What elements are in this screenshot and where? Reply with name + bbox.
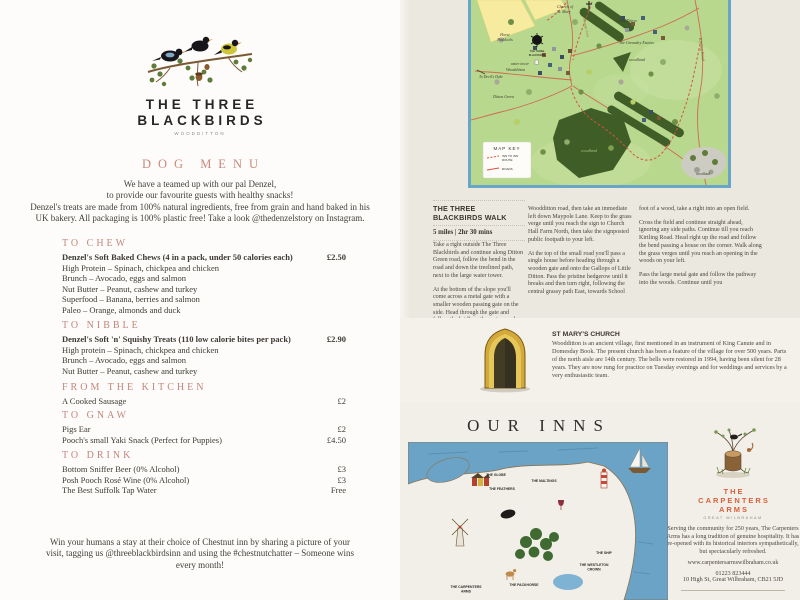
item-variant: Superfood – Banana, berries and salmon — [62, 294, 346, 305]
pub-building-icon — [677, 594, 789, 600]
carpenters-description: Serving the community for 250 years, The… — [666, 526, 800, 556]
carpenters-address: 10 High St, Great Wilbraham, CB21 5JD — [666, 577, 800, 583]
menu-item-row: Bottom Sniffer Beer (0% Alcohol) £3 — [62, 464, 346, 475]
walk-paragraph: Take a right outside The Three Blackbird… — [433, 242, 525, 281]
intro-line: Denzel's treats are made from 100% natur… — [0, 202, 400, 213]
menu-item-row: A Cooked Sausage £2 — [62, 396, 346, 407]
brand-line1: THE THREE — [4, 97, 400, 113]
item-name: Pigs Ear — [62, 424, 91, 435]
item-name: Bottom Sniffer Beer (0% Alcohol) — [62, 464, 179, 475]
menu-item-row: Posh Pooch Rosé Wine (0% Alcohol) £3 — [62, 475, 346, 486]
item-price: £2.90 — [327, 334, 346, 345]
item-price: £2 — [338, 424, 347, 435]
svg-text:St. Mary: St. Mary — [557, 9, 571, 14]
carpenters-name-line: THE — [668, 487, 800, 496]
item-variant: Brunch – Avocado, eggs and salmon — [62, 355, 346, 366]
item-name: Pooch's small Yaki Snack (Perfect for Pu… — [62, 435, 222, 446]
village-map-illustration: Church of St. Mary Little Ditton The Gre… — [471, 0, 728, 185]
svg-text:THE PACKHORSE: THE PACKHORSE — [509, 583, 539, 587]
menu-item-row: Pigs Ear £2 — [62, 424, 346, 435]
item-price: £3 — [338, 475, 347, 486]
svg-text:THE GLOBE: THE GLOBE — [486, 473, 507, 477]
church-section: ST MARY'S CHURCH Woodditton is an ancien… — [400, 318, 800, 402]
carpenters-arms-panel: THE CARPENTERS ARMS GREAT WILBRAHAM Serv… — [666, 424, 800, 600]
svg-text:Ditton Green: Ditton Green — [492, 94, 514, 99]
svg-text:THE WESTLETON: THE WESTLETON — [580, 563, 609, 567]
church-body: Woodditton is an ancient village, first … — [552, 340, 790, 380]
deer-icon — [506, 569, 517, 580]
item-price: £2 — [338, 396, 347, 407]
village-walk-map: Church of St. Mary Little Ditton The Gre… — [468, 0, 731, 188]
section-to-gnaw: TO GNAW Pigs Ear £2 Pooch's small Yaki S… — [62, 410, 346, 445]
walk-description: THE THREE BLACKBIRDS WALK 5 miles | 2hr … — [400, 196, 800, 318]
item-price: Free — [331, 485, 346, 496]
section-heading: TO CHEW — [62, 238, 346, 249]
tree-stump-icon — [701, 424, 765, 482]
three-blackbirds-logo-icon — [140, 28, 260, 94]
svg-text:THE CARPENTERS: THE CARPENTERS — [450, 585, 482, 589]
section-to-drink: TO DRINK Bottom Sniffer Beer (0% Alcohol… — [62, 450, 346, 496]
church-arch-icon — [478, 325, 532, 395]
church-title: ST MARY'S CHURCH — [552, 331, 790, 338]
svg-text:woodland: woodland — [629, 57, 646, 62]
inns-region-map-illustration: THE GLOBE THE FEATHERS THE MALTINGS THE … — [408, 442, 668, 600]
intro-line: to provide our favourite guests with hea… — [0, 190, 400, 201]
item-variant: High protein – Spinach, chickpea and chi… — [62, 345, 346, 356]
walk-title: THE THREE BLACKBIRDS WALK — [433, 200, 525, 226]
wine-glass-icon — [558, 500, 564, 510]
walk-header: THE THREE BLACKBIRDS WALK 5 miles | 2hr … — [433, 200, 525, 241]
section-to-nibble: TO NIBBLE Denzel's Soft 'n' Squishy Trea… — [62, 320, 346, 376]
menu-item-row: The Best Suffolk Tap Water Free — [62, 485, 346, 496]
carpenters-subtitle: GREAT WILBRAHAM — [666, 516, 800, 520]
walk-paragraph: At the top of the small road you'll pass… — [528, 251, 634, 297]
brand-wordmark: THE THREE BLACKBIRDS — [0, 97, 400, 129]
walk-paragraph: foot of a wood, take a right into an ope… — [639, 206, 764, 214]
menu-item-row: Denzel's Soft Baked Chews (4 in a pack, … — [62, 252, 346, 263]
section-heading: TO GNAW — [62, 410, 346, 421]
walk-paragraph: Pass the large metal gate and follow the… — [639, 272, 764, 287]
carpenters-name-line: ARMS — [668, 505, 800, 514]
svg-text:ROADS: ROADS — [502, 167, 513, 171]
svg-text:Little Ditton: Little Ditton — [616, 18, 637, 23]
intro-line: UK bakery. All packaging is 100% plastic… — [0, 213, 400, 224]
item-price: £4.50 — [327, 435, 346, 446]
mole-icon — [500, 508, 517, 520]
blackbird-right-icon — [214, 40, 242, 55]
blackbird-middle-icon — [184, 37, 213, 52]
menu-item-row: Pooch's small Yaki Snack (Perfect for Pu… — [62, 435, 346, 446]
section-heading: FROM THE KITCHEN — [62, 382, 346, 393]
svg-text:BLACKBIRDS: BLACKBIRDS — [529, 53, 546, 57]
item-price: £2.50 — [327, 252, 346, 263]
svg-text:ARMS: ARMS — [461, 590, 472, 594]
footer-line: visit, tagging us @threeblackbirdsinn an… — [0, 548, 400, 559]
church-text: ST MARY'S CHURCH Woodditton is an ancien… — [552, 331, 790, 380]
our-inns-title: OUR INNS — [400, 416, 670, 436]
windmill-icon — [452, 519, 468, 546]
svg-text:CROWN: CROWN — [587, 568, 601, 572]
item-variant: High Protein – Spinach, chickpea and chi… — [62, 263, 346, 274]
menu-item-row: Denzel's Soft 'n' Squishy Treats (110 lo… — [62, 334, 346, 345]
item-variant: Nut Butter – Peanut, cashew and turkey — [62, 366, 346, 377]
brand-subtitle: WOODDITTON — [0, 131, 400, 136]
svg-text:water tower: water tower — [511, 62, 530, 66]
svg-text:ROUTE: ROUTE — [502, 158, 513, 162]
svg-text:To Devil's Dyke: To Devil's Dyke — [479, 75, 503, 79]
svg-text:woodland: woodland — [581, 148, 598, 153]
map-key: MAP KEY INN TO INN ROUTE ROADS — [483, 142, 531, 178]
water-tower-icon — [535, 60, 538, 64]
footer-line: every month! — [0, 560, 400, 571]
competition-footer: Win your humans a stay at their choice o… — [0, 537, 400, 571]
walk-paragraph: Cross the field and continue straight ah… — [639, 220, 764, 266]
section-heading: TO DRINK — [62, 450, 346, 461]
item-variant: Paleo – Orange, almonds and duck — [62, 305, 346, 316]
svg-text:THE SHIP: THE SHIP — [596, 551, 612, 555]
section-heading: TO NIBBLE — [62, 320, 346, 331]
footer-line: Win your humans a stay at their choice o… — [0, 537, 400, 548]
forest-cluster — [515, 528, 559, 561]
item-price: £3 — [338, 464, 347, 475]
item-variant: Nut Butter – Peanut, cashew and turkey — [62, 284, 346, 295]
intro-line: We have a teamed up with our pal Denzel, — [0, 179, 400, 190]
menu-title: DOG MENU — [0, 157, 400, 172]
our-inns-section: OUR INNS — [400, 402, 800, 600]
item-name: Denzel's Soft 'n' Squishy Treats (110 lo… — [62, 334, 291, 345]
brand-line2: BLACKBIRDS — [4, 113, 400, 129]
brochure-spread: THE THREE BLACKBIRDS WOODDITTON DOG MENU… — [0, 0, 800, 600]
dog-menu-page: THE THREE BLACKBIRDS WOODDITTON DOG MENU… — [0, 0, 400, 600]
item-name: A Cooked Sausage — [62, 396, 126, 407]
walk-distance-duration: 5 miles | 2hr 30 mins — [433, 226, 525, 241]
svg-text:Paddocks: Paddocks — [496, 37, 513, 42]
item-name: Denzel's Soft Baked Chews (4 in a pack, … — [62, 252, 293, 263]
svg-text:THE FEATHERS: THE FEATHERS — [489, 487, 515, 491]
svg-text:THE THREE: THE THREE — [530, 49, 545, 53]
carpenters-website: www.carpentersarmswilbraham.co.uk — [666, 560, 800, 566]
carpenters-name-line: CARPENTERS — [668, 496, 800, 505]
item-variant: Brunch – Avocado, eggs and salmon — [62, 273, 346, 284]
estuary-blob — [553, 574, 583, 590]
walk-column-3: foot of a wood, take a right into an ope… — [639, 206, 764, 293]
divider — [681, 590, 785, 591]
walk-paragraph: Woodditton road, then take an immediate … — [528, 206, 634, 245]
menu-intro: We have a teamed up with our pal Denzel,… — [0, 179, 400, 225]
lighthouse-icon — [601, 469, 607, 489]
svg-text:THE MALTINGS: THE MALTINGS — [531, 479, 557, 483]
item-name: Posh Pooch Rosé Wine (0% Alcohol) — [62, 475, 189, 486]
walk-column-2: Woodditton road, then take an immediate … — [528, 206, 634, 303]
walk-page: Church of St. Mary Little Ditton The Gre… — [400, 0, 800, 600]
item-name: The Best Suffolk Tap Water — [62, 485, 157, 496]
svg-text:Woodditton: Woodditton — [506, 67, 525, 72]
section-from-kitchen: FROM THE KITCHEN A Cooked Sausage £2 — [62, 382, 346, 407]
carpenters-arms-name: THE CARPENTERS ARMS — [666, 487, 800, 514]
svg-text:The Grenadry Estates: The Grenadry Estates — [619, 40, 654, 45]
svg-text:MAP KEY: MAP KEY — [494, 146, 521, 151]
section-to-chew: TO CHEW Denzel's Soft Baked Chews (4 in … — [62, 238, 346, 316]
svg-text:woodland: woodland — [696, 172, 710, 176]
